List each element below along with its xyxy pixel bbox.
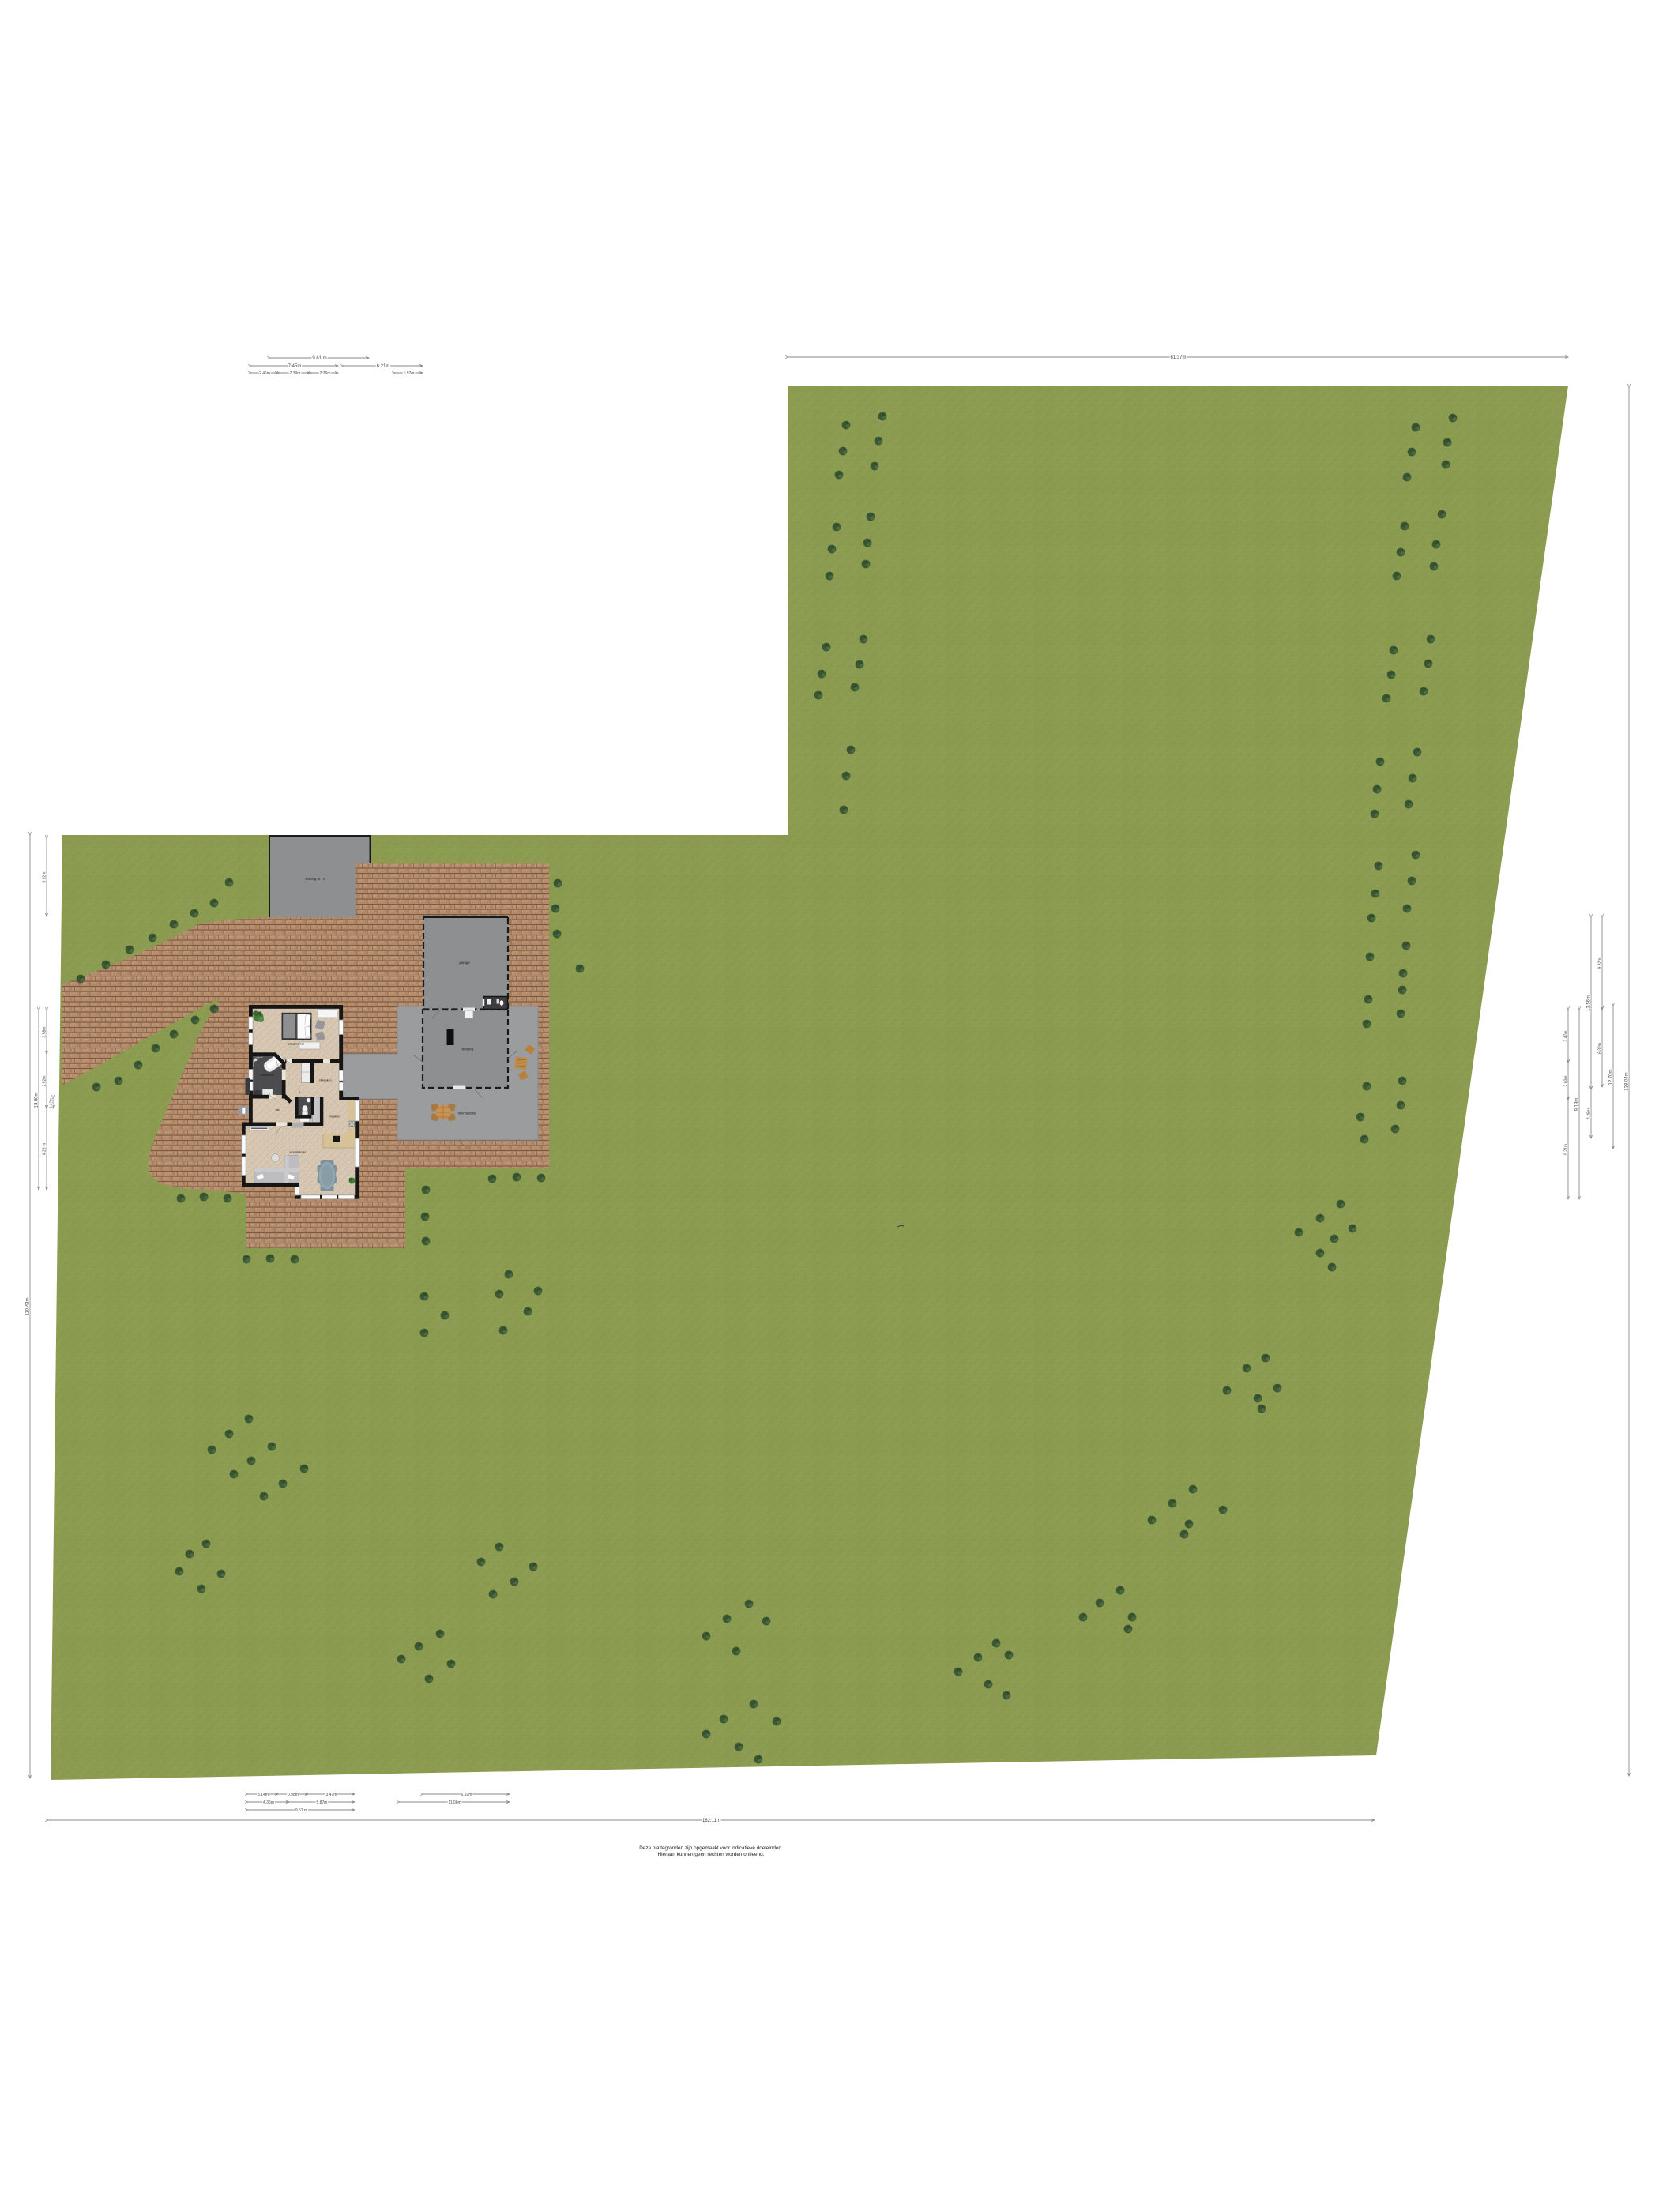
svg-text:6.32m: 6.32m bbox=[1598, 1043, 1603, 1054]
svg-text:6.92m: 6.92m bbox=[461, 1793, 472, 1797]
svg-text:2.60m: 2.60m bbox=[1564, 1076, 1569, 1087]
svg-text:9.13m: 9.13m bbox=[1575, 1098, 1580, 1112]
svg-text:2.92m: 2.92m bbox=[43, 1076, 47, 1087]
svg-text:12.70m: 12.70m bbox=[1609, 1069, 1614, 1085]
svg-text:1.97m: 1.97m bbox=[404, 371, 415, 376]
svg-text:1.17m: 1.17m bbox=[49, 1098, 53, 1108]
svg-text:garage: garage bbox=[459, 961, 470, 965]
svg-text:0.98m: 0.98m bbox=[288, 1793, 299, 1797]
svg-text:9.61 m: 9.61 m bbox=[312, 356, 326, 361]
svg-text:4.28 m: 4.28 m bbox=[43, 1143, 47, 1155]
svg-text:Deze plattegronden zijn opgema: Deze plattegronden zijn opgemaakt voor i… bbox=[639, 1845, 783, 1851]
svg-text:1: 1 bbox=[299, 1090, 300, 1093]
svg-text:3.14m: 3.14m bbox=[258, 1793, 269, 1797]
svg-text:2.39m: 2.39m bbox=[290, 371, 301, 376]
svg-text:4.36m: 4.36m bbox=[263, 1800, 274, 1805]
svg-text:2.46m: 2.46m bbox=[259, 371, 270, 376]
svg-text:badkamer: badkamer bbox=[260, 1073, 274, 1077]
svg-text:110.43m: 110.43m bbox=[26, 1298, 31, 1316]
svg-text:7.45m: 7.45m bbox=[288, 364, 302, 369]
svg-text:138.04m: 138.04m bbox=[1625, 1072, 1630, 1090]
svg-text:woonkamer: woonkamer bbox=[290, 1150, 307, 1154]
svg-text:hal: hal bbox=[276, 1108, 280, 1112]
svg-text:woning nr 74: woning nr 74 bbox=[305, 877, 325, 881]
svg-text:3.47m: 3.47m bbox=[326, 1793, 337, 1797]
svg-text:bijkeuken: bijkeuken bbox=[319, 1078, 331, 1082]
svg-text:11.06m: 11.06m bbox=[448, 1800, 461, 1805]
svg-text:overkapping: overkapping bbox=[458, 1112, 476, 1115]
svg-text:9.61 m: 9.61 m bbox=[295, 1808, 307, 1813]
svg-text:3.47m: 3.47m bbox=[1564, 1031, 1569, 1042]
svg-text:slaapkamer: slaapkamer bbox=[288, 1041, 305, 1045]
svg-text:berging: berging bbox=[462, 1048, 474, 1051]
svg-text:keuken: keuken bbox=[330, 1114, 340, 1118]
svg-text:13.80m: 13.80m bbox=[35, 1092, 39, 1108]
svg-text:5.87m: 5.87m bbox=[317, 1800, 328, 1805]
svg-text:9.21m: 9.21m bbox=[1564, 1144, 1569, 1155]
svg-text:61.37m: 61.37m bbox=[1170, 355, 1186, 360]
svg-text:2.76m: 2.76m bbox=[320, 371, 331, 376]
svg-text:6.92m: 6.92m bbox=[43, 872, 47, 883]
svg-text:9.82m: 9.82m bbox=[1598, 958, 1603, 969]
svg-text:6.21m: 6.21m bbox=[377, 364, 390, 369]
svg-text:13.56m: 13.56m bbox=[1587, 995, 1592, 1011]
svg-text:3.58m: 3.58m bbox=[43, 1027, 47, 1038]
svg-text:Hieraan kunnen geen rechten wo: Hieraan kunnen geen rechten worden ontle… bbox=[657, 1852, 764, 1857]
svg-text:162.11m: 162.11m bbox=[702, 1819, 720, 1823]
svg-text:4.38m: 4.38m bbox=[1587, 1108, 1592, 1119]
